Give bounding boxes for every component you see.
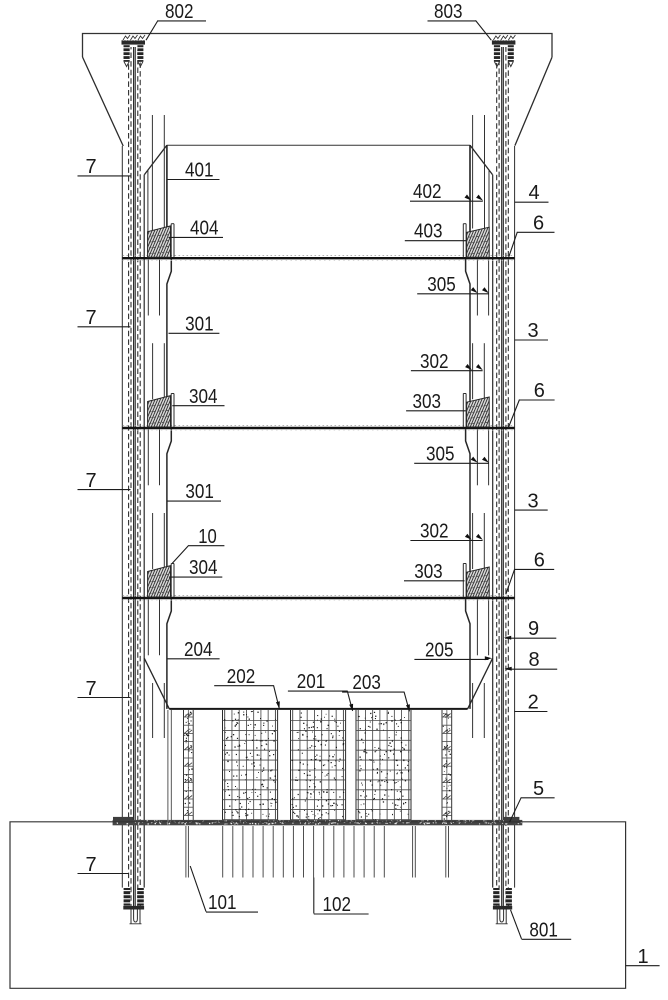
svg-text:803: 803 xyxy=(434,1,463,23)
svg-text:302: 302 xyxy=(420,351,449,373)
svg-text:7: 7 xyxy=(86,678,97,700)
svg-text:2: 2 xyxy=(528,692,539,714)
svg-text:6: 6 xyxy=(533,212,544,234)
svg-text:6: 6 xyxy=(534,380,545,402)
svg-text:404: 404 xyxy=(190,217,219,239)
svg-text:1: 1 xyxy=(638,946,649,968)
svg-text:303: 303 xyxy=(413,391,442,413)
svg-text:305: 305 xyxy=(426,443,455,465)
svg-text:802: 802 xyxy=(165,1,194,23)
svg-text:305: 305 xyxy=(427,274,456,296)
svg-text:801: 801 xyxy=(529,919,558,941)
svg-text:203: 203 xyxy=(352,672,381,694)
svg-text:304: 304 xyxy=(189,386,218,408)
svg-text:3: 3 xyxy=(528,490,539,512)
svg-text:201: 201 xyxy=(297,671,326,693)
svg-text:3: 3 xyxy=(528,320,539,342)
svg-text:10: 10 xyxy=(198,526,217,548)
svg-text:301: 301 xyxy=(185,481,214,503)
svg-text:9: 9 xyxy=(528,618,539,640)
svg-text:301: 301 xyxy=(185,313,214,335)
svg-text:204: 204 xyxy=(184,639,213,661)
svg-text:4: 4 xyxy=(529,182,540,204)
svg-text:303: 303 xyxy=(414,561,443,583)
svg-text:304: 304 xyxy=(189,557,218,579)
svg-text:7: 7 xyxy=(86,470,97,492)
svg-text:205: 205 xyxy=(425,639,454,661)
svg-text:403: 403 xyxy=(414,221,443,243)
svg-text:101: 101 xyxy=(208,892,237,914)
svg-text:202: 202 xyxy=(227,666,256,688)
svg-text:302: 302 xyxy=(420,521,449,543)
svg-text:7: 7 xyxy=(86,854,97,876)
svg-text:6: 6 xyxy=(534,549,545,571)
svg-text:7: 7 xyxy=(86,156,97,178)
svg-text:402: 402 xyxy=(413,181,442,203)
svg-text:5: 5 xyxy=(533,778,544,800)
svg-text:8: 8 xyxy=(529,649,540,671)
svg-text:102: 102 xyxy=(323,894,352,916)
svg-text:7: 7 xyxy=(86,307,97,329)
svg-text:401: 401 xyxy=(185,160,214,182)
